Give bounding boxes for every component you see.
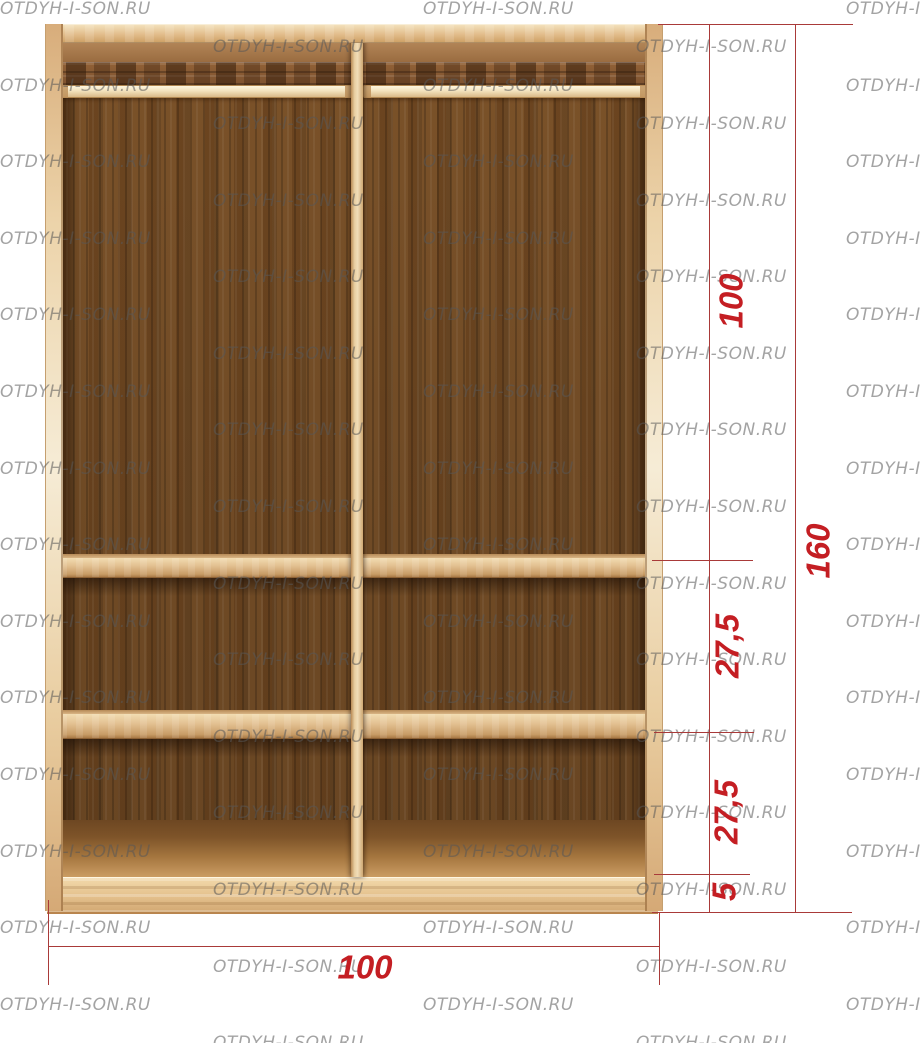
dimension-line-total-vertical [795, 25, 796, 913]
dimension-label-width: 100 [337, 951, 392, 984]
width-extension-right [659, 912, 660, 985]
diagram-canvas: OTDYH-I-SON.RUOTDYH-I-SON.RUOTDYH-I-SON.… [0, 0, 921, 1043]
dimension-tick-bottom [652, 912, 852, 913]
dimension-tick-shelf-lower [654, 732, 754, 733]
dimension-label-total-height: 160 [802, 523, 835, 578]
dimension-tick-shelf-upper [652, 560, 753, 561]
dimension-tick-top [658, 24, 853, 25]
dimension-tick-plinth [654, 874, 750, 875]
dimension-layer: 100 160 27,5 27,5 5 100 [0, 0, 921, 1043]
dimension-line-width [48, 946, 660, 947]
width-extension-left [48, 900, 49, 985]
dimension-label-upper-section-height: 100 [715, 273, 748, 328]
dimension-label-middle-section-height: 27,5 [711, 614, 744, 678]
dimension-label-lower-section-height: 27,5 [710, 780, 743, 844]
dimension-label-plinth-height: 5 [708, 883, 741, 901]
